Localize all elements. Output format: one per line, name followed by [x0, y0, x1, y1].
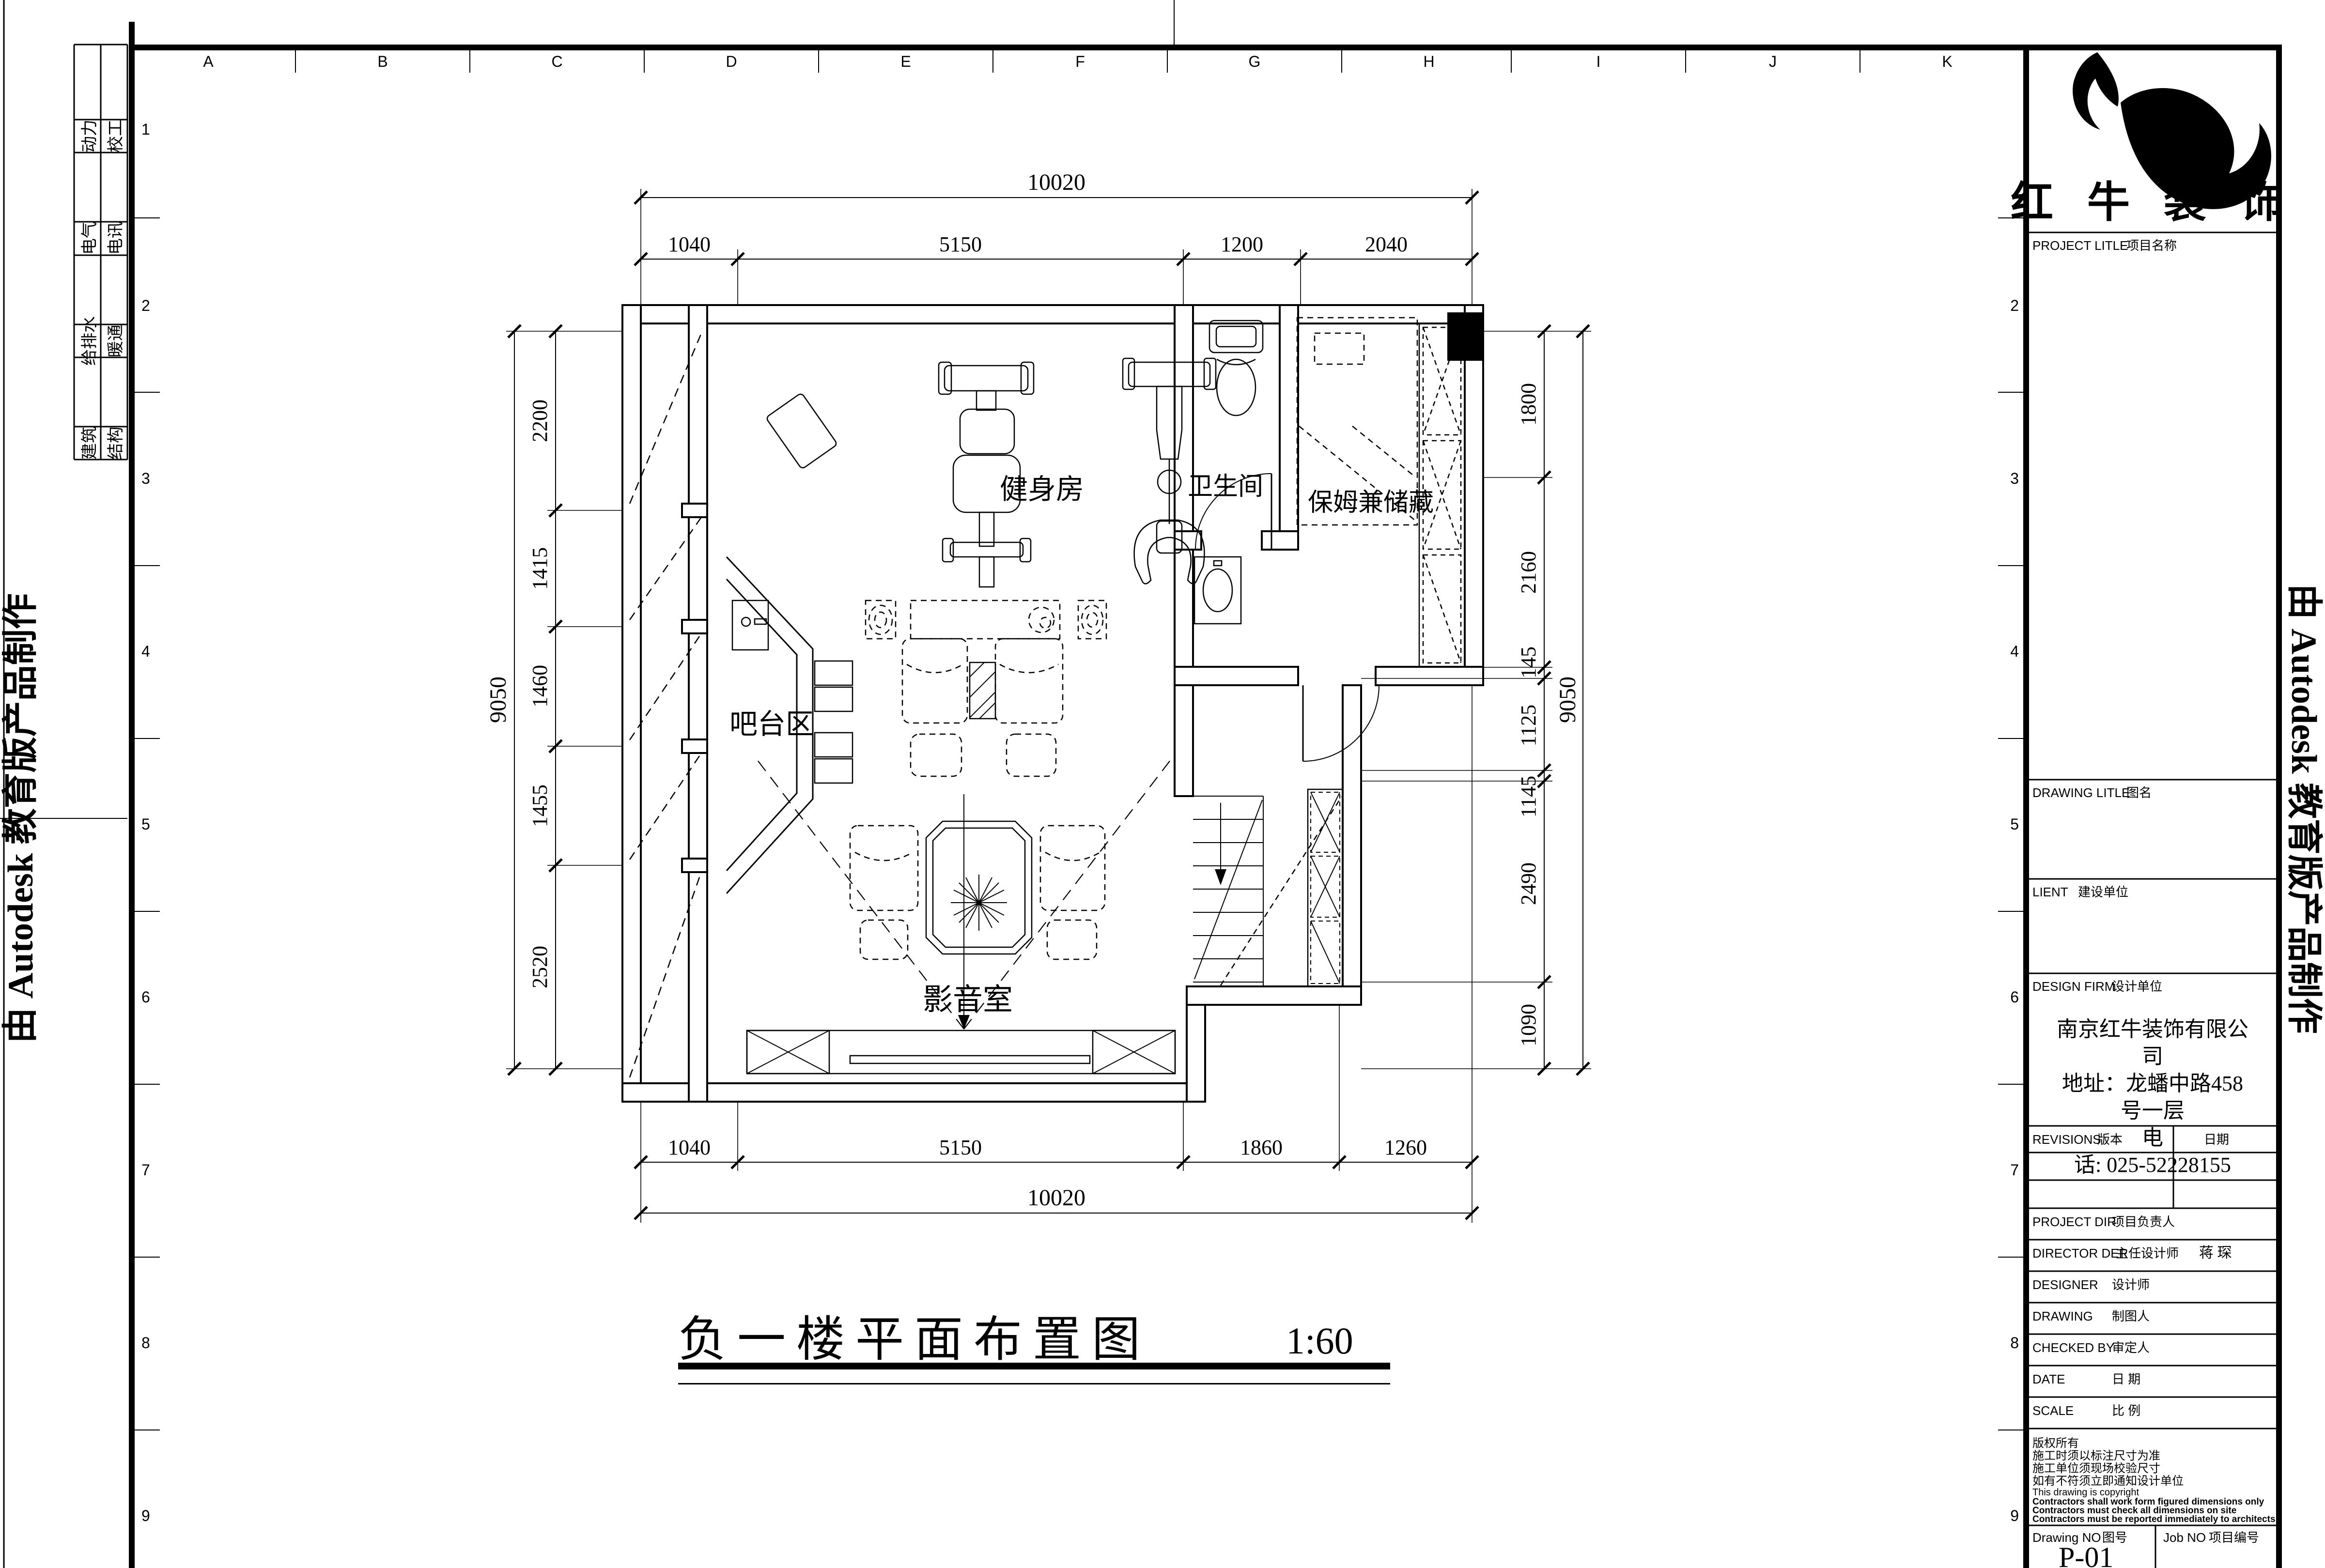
firm-line: 电 [2142, 1126, 2163, 1150]
row-drawing-en: DRAWING [2032, 1309, 2093, 1323]
note-line: 如有不符须立即通知设计单位 [2032, 1475, 2184, 1488]
ruler-letter: C [551, 53, 562, 70]
firm-line: 南京红牛装饰有限公 [2057, 1017, 2248, 1041]
stamp-cell: 建筑 [80, 427, 99, 460]
wall-bath-bottom-b [1262, 531, 1298, 550]
field-project-title-en: PROJECT LITLE [2032, 238, 2128, 253]
vanity [1194, 557, 1241, 624]
dim: 2490 [1517, 862, 1540, 905]
wall-stub [682, 620, 707, 633]
ruler-letter: J [1769, 53, 1777, 70]
gym-room: 健身房 [766, 358, 1216, 587]
wall-bottom [622, 1083, 1205, 1102]
tv-screen [850, 1056, 1090, 1063]
sheet-title: 负一楼平面布置图 1:60 [678, 1313, 1390, 1384]
ottoman [1007, 734, 1056, 776]
row-number: 4 [2010, 643, 2019, 660]
note-line: 施工时须以标注尺寸为准 [2032, 1449, 2160, 1462]
row-number: 2 [2010, 297, 2019, 314]
stamp-cell: 校工 [107, 120, 125, 153]
row-checked-en: CHECKED BY [2032, 1340, 2114, 1355]
dim: 1040 [668, 232, 711, 256]
plant-pot [1078, 600, 1106, 639]
wall-stair-right [1343, 685, 1361, 1005]
row-number: 5 [2010, 815, 2019, 833]
note-line: 施工单位须现场校验尺寸 [2032, 1462, 2160, 1475]
media-room: 影音室 [747, 600, 1175, 1074]
row-director-en: DIRECTOR DER [2032, 1246, 2128, 1261]
row-number: 1 [141, 121, 150, 138]
row-number: 3 [141, 470, 150, 487]
note-line: This drawing is copyright [2032, 1487, 2139, 1498]
ottoman [860, 920, 908, 959]
wall-stair-bottom [1187, 986, 1361, 1005]
room-label-media: 影音室 [923, 984, 1013, 1016]
row-number: 4 [141, 643, 150, 660]
nanny-door-swing [1303, 684, 1379, 761]
wall-right-upper [1465, 305, 1483, 685]
company-name: 红 牛 装 饰 [2011, 180, 2294, 227]
bathroom: 卫生间 [1188, 321, 1271, 624]
field-revision-date: 日期 [2204, 1132, 2229, 1147]
wall-nanny-bottom-b [1376, 667, 1483, 685]
dim: 1260 [1384, 1136, 1427, 1159]
console [911, 600, 1060, 639]
row-date-cn: 日 期 [2112, 1372, 2140, 1386]
title-underline-thick [678, 1363, 1390, 1369]
bar-tables [815, 661, 852, 783]
cad-drawing-sheet: A B C D E F G H I J K 1 2 3 4 5 6 7 8 9 … [0, 0, 2325, 1568]
stair-arrow-head [1215, 869, 1226, 885]
dim: 1145 [1517, 776, 1540, 817]
sofa [995, 639, 1063, 723]
dim: 1460 [528, 665, 552, 707]
room-label-gym: 健身房 [1000, 474, 1084, 505]
number-row: Drawing NO 图号 P-01 Job NO 项目编号 [2032, 1530, 2259, 1568]
row-scale-cn: 比 例 [2112, 1403, 2140, 1418]
field-client-cn: 建设单位 [2078, 885, 2128, 899]
ottoman [1047, 920, 1097, 959]
wall-stub [682, 504, 707, 517]
ruler-letter: I [1596, 53, 1601, 70]
field-revisions-cn: 版本 [2097, 1132, 2123, 1147]
dim: 2520 [528, 946, 552, 988]
staircase [1193, 789, 1343, 986]
dim-bottom-total: 10020 [1027, 1185, 1085, 1211]
row-number: 3 [2010, 470, 2019, 487]
stamp-cell: 动力 [80, 120, 99, 153]
firm-line: 司 [2142, 1045, 2163, 1068]
row-designer-en: DESIGNER [2032, 1277, 2098, 1292]
row-scale-en: SCALE [2032, 1403, 2074, 1418]
wall-notch-left [1187, 1005, 1205, 1102]
toilet-tank [1209, 321, 1263, 353]
field-drawing-title-cn: 图名 [2126, 785, 2152, 800]
drawing-no-value: P-01 [2059, 1541, 2113, 1568]
row-number: 8 [2010, 1334, 2019, 1352]
stamp-cell: 给排水 [80, 316, 99, 366]
ruler-letter: H [1423, 53, 1434, 70]
row-number: 9 [141, 1507, 150, 1524]
side-table [970, 662, 995, 719]
stair-cabinet [1308, 789, 1343, 986]
dim-right-total: 9050 [1555, 676, 1581, 723]
toilet-bowl [1217, 359, 1255, 415]
row-ticks [129, 218, 2029, 1430]
note-line: Contractors must be reported immediately… [2032, 1514, 2276, 1524]
stamp-cell: 结构 [107, 427, 125, 460]
ruler-letter: D [726, 53, 737, 70]
design-firm-info: 南京红牛装饰有限公 司 地址：龙蟠中路458 号一层 电 话: 025-5222… [2057, 1017, 2248, 1177]
row-project-dir-en: PROJECT DIR [2032, 1214, 2116, 1229]
dim: 1125 [1517, 705, 1540, 746]
bar-sink [732, 600, 768, 650]
row-number: 6 [2010, 988, 2019, 1006]
row-director-cn: 主任设计师 [2116, 1246, 2179, 1261]
top-ruler: A B C D E F G H I J K [203, 50, 1952, 73]
row-date-en: DATE [2032, 1372, 2065, 1386]
plant [951, 875, 1007, 931]
armchair [850, 826, 918, 910]
dim: 1415 [528, 547, 552, 590]
dim: 1200 [1221, 232, 1263, 256]
note-line: 版权所有 [2032, 1437, 2079, 1450]
wall-nanny-bottom-a [1175, 667, 1298, 685]
dim: 2040 [1365, 232, 1408, 256]
wall-stub [682, 859, 707, 872]
wall-bath-left [1175, 305, 1193, 550]
row-checked-cn: 审定人 [2112, 1340, 2150, 1355]
field-drawing-title-en: DRAWING LITLE [2032, 785, 2130, 800]
stamp-cell: 电气 [80, 222, 99, 255]
dim-top-total: 10020 [1027, 169, 1085, 195]
room-label-nanny: 保姆兼储藏 [1308, 489, 1434, 517]
discipline-stamp-table: 动力 校工 电气 电讯 给排水 暖通 建筑 结构 [74, 45, 127, 460]
field-client-en: LIENT [2032, 885, 2068, 899]
copyright-notes: 版权所有 施工时须以标注尺寸为准 施工单位须现场校验尺寸 如有不符须立即通知设计… [2032, 1437, 2276, 1524]
row-director-value: 蒋 琛 [2199, 1245, 2232, 1261]
sheet-title-text: 负一楼平面布置图 [678, 1313, 1151, 1367]
frame-right-border [2276, 45, 2282, 1568]
floorplan-walls [622, 305, 1483, 1102]
title-block: 红 牛 装 饰 PROJECT LITLE 项目名称 [2011, 52, 2294, 1568]
ruler-letter: K [1942, 53, 1952, 70]
dim: 5150 [939, 1136, 982, 1159]
room-label-bar: 吧台区 [729, 708, 814, 740]
ruler-letter: F [1075, 53, 1085, 70]
field-revisions-en: REVISIONS [2032, 1132, 2101, 1147]
field-design-firm-cn: 设计单位 [2112, 979, 2162, 994]
firm-line: 地址：龙蟠中路458 [2062, 1072, 2243, 1095]
wall-bath-right [1280, 305, 1298, 550]
row-project-dir-cn: 项目负责人 [2112, 1214, 2175, 1229]
field-design-firm-en: DESIGN FIRM [2032, 979, 2115, 994]
dim: 145 [1517, 646, 1540, 678]
dim-left-total: 9050 [485, 676, 511, 723]
firm-line: 话: 025-52228155 [2074, 1153, 2231, 1177]
dim: 2200 [528, 400, 552, 442]
plant-pot [866, 600, 896, 639]
row-number: 9 [2010, 1507, 2019, 1524]
armchair [1040, 826, 1105, 910]
bar-area: 吧台区 [727, 557, 852, 893]
dim: 1455 [528, 784, 552, 827]
dim: 1860 [1240, 1136, 1283, 1159]
field-project-title-cn: 项目名称 [2126, 238, 2177, 253]
row-number: 6 [141, 988, 150, 1006]
dim: 5150 [939, 232, 982, 256]
ruler-letter: E [900, 53, 911, 70]
company-logo: 红 牛 装 饰 [2011, 52, 2294, 227]
dim: 1800 [1517, 383, 1540, 426]
wall-left [622, 305, 641, 1102]
sheet-title-scale: 1:60 [1286, 1320, 1353, 1362]
dim: 1040 [668, 1136, 711, 1159]
stamp-cell: 暖通 [107, 324, 125, 357]
job-no-label-cn: 项目编号 [2209, 1530, 2259, 1545]
firm-line: 号一层 [2121, 1099, 2185, 1122]
gym-mat [766, 393, 837, 469]
row-designer-cn: 设计师 [2112, 1277, 2150, 1292]
row-number: 7 [141, 1161, 150, 1179]
wall-stub [682, 739, 707, 753]
row-number: 8 [141, 1334, 150, 1352]
ruler-letter: G [1249, 53, 1261, 70]
frame-left-border [129, 22, 135, 1568]
dim: 1090 [1517, 1004, 1540, 1046]
wall-top [622, 305, 1483, 323]
ruler-letter: A [203, 53, 214, 70]
nanny-room: 保姆兼储藏 [1297, 318, 1465, 761]
row-number: 7 [2010, 1161, 2019, 1179]
title-underline-thin [678, 1383, 1390, 1384]
wall-inner-strip [689, 305, 707, 1102]
autodesk-watermark-right: 由 Autodesk 教育版产品制作 [2284, 584, 2324, 1033]
sofa [902, 639, 967, 723]
row-drawing-cn: 制图人 [2112, 1309, 2150, 1323]
row-number: 2 [141, 297, 150, 314]
ottoman [911, 734, 961, 776]
autodesk-watermark-left: 由 Autodesk 教育版产品制作 [1, 593, 41, 1043]
frame-top-border [129, 45, 2282, 50]
row-number: 5 [141, 815, 150, 833]
center-table [926, 821, 1032, 954]
dim: 2160 [1517, 551, 1540, 594]
frame-titleblock-border [2023, 45, 2029, 1568]
ruler-letter: B [377, 53, 387, 70]
tv-cabinet [747, 1030, 1175, 1074]
stamp-cell: 电讯 [107, 222, 125, 255]
job-no-label-en: Job NO [2163, 1530, 2206, 1545]
room-label-bath: 卫生间 [1188, 473, 1263, 501]
